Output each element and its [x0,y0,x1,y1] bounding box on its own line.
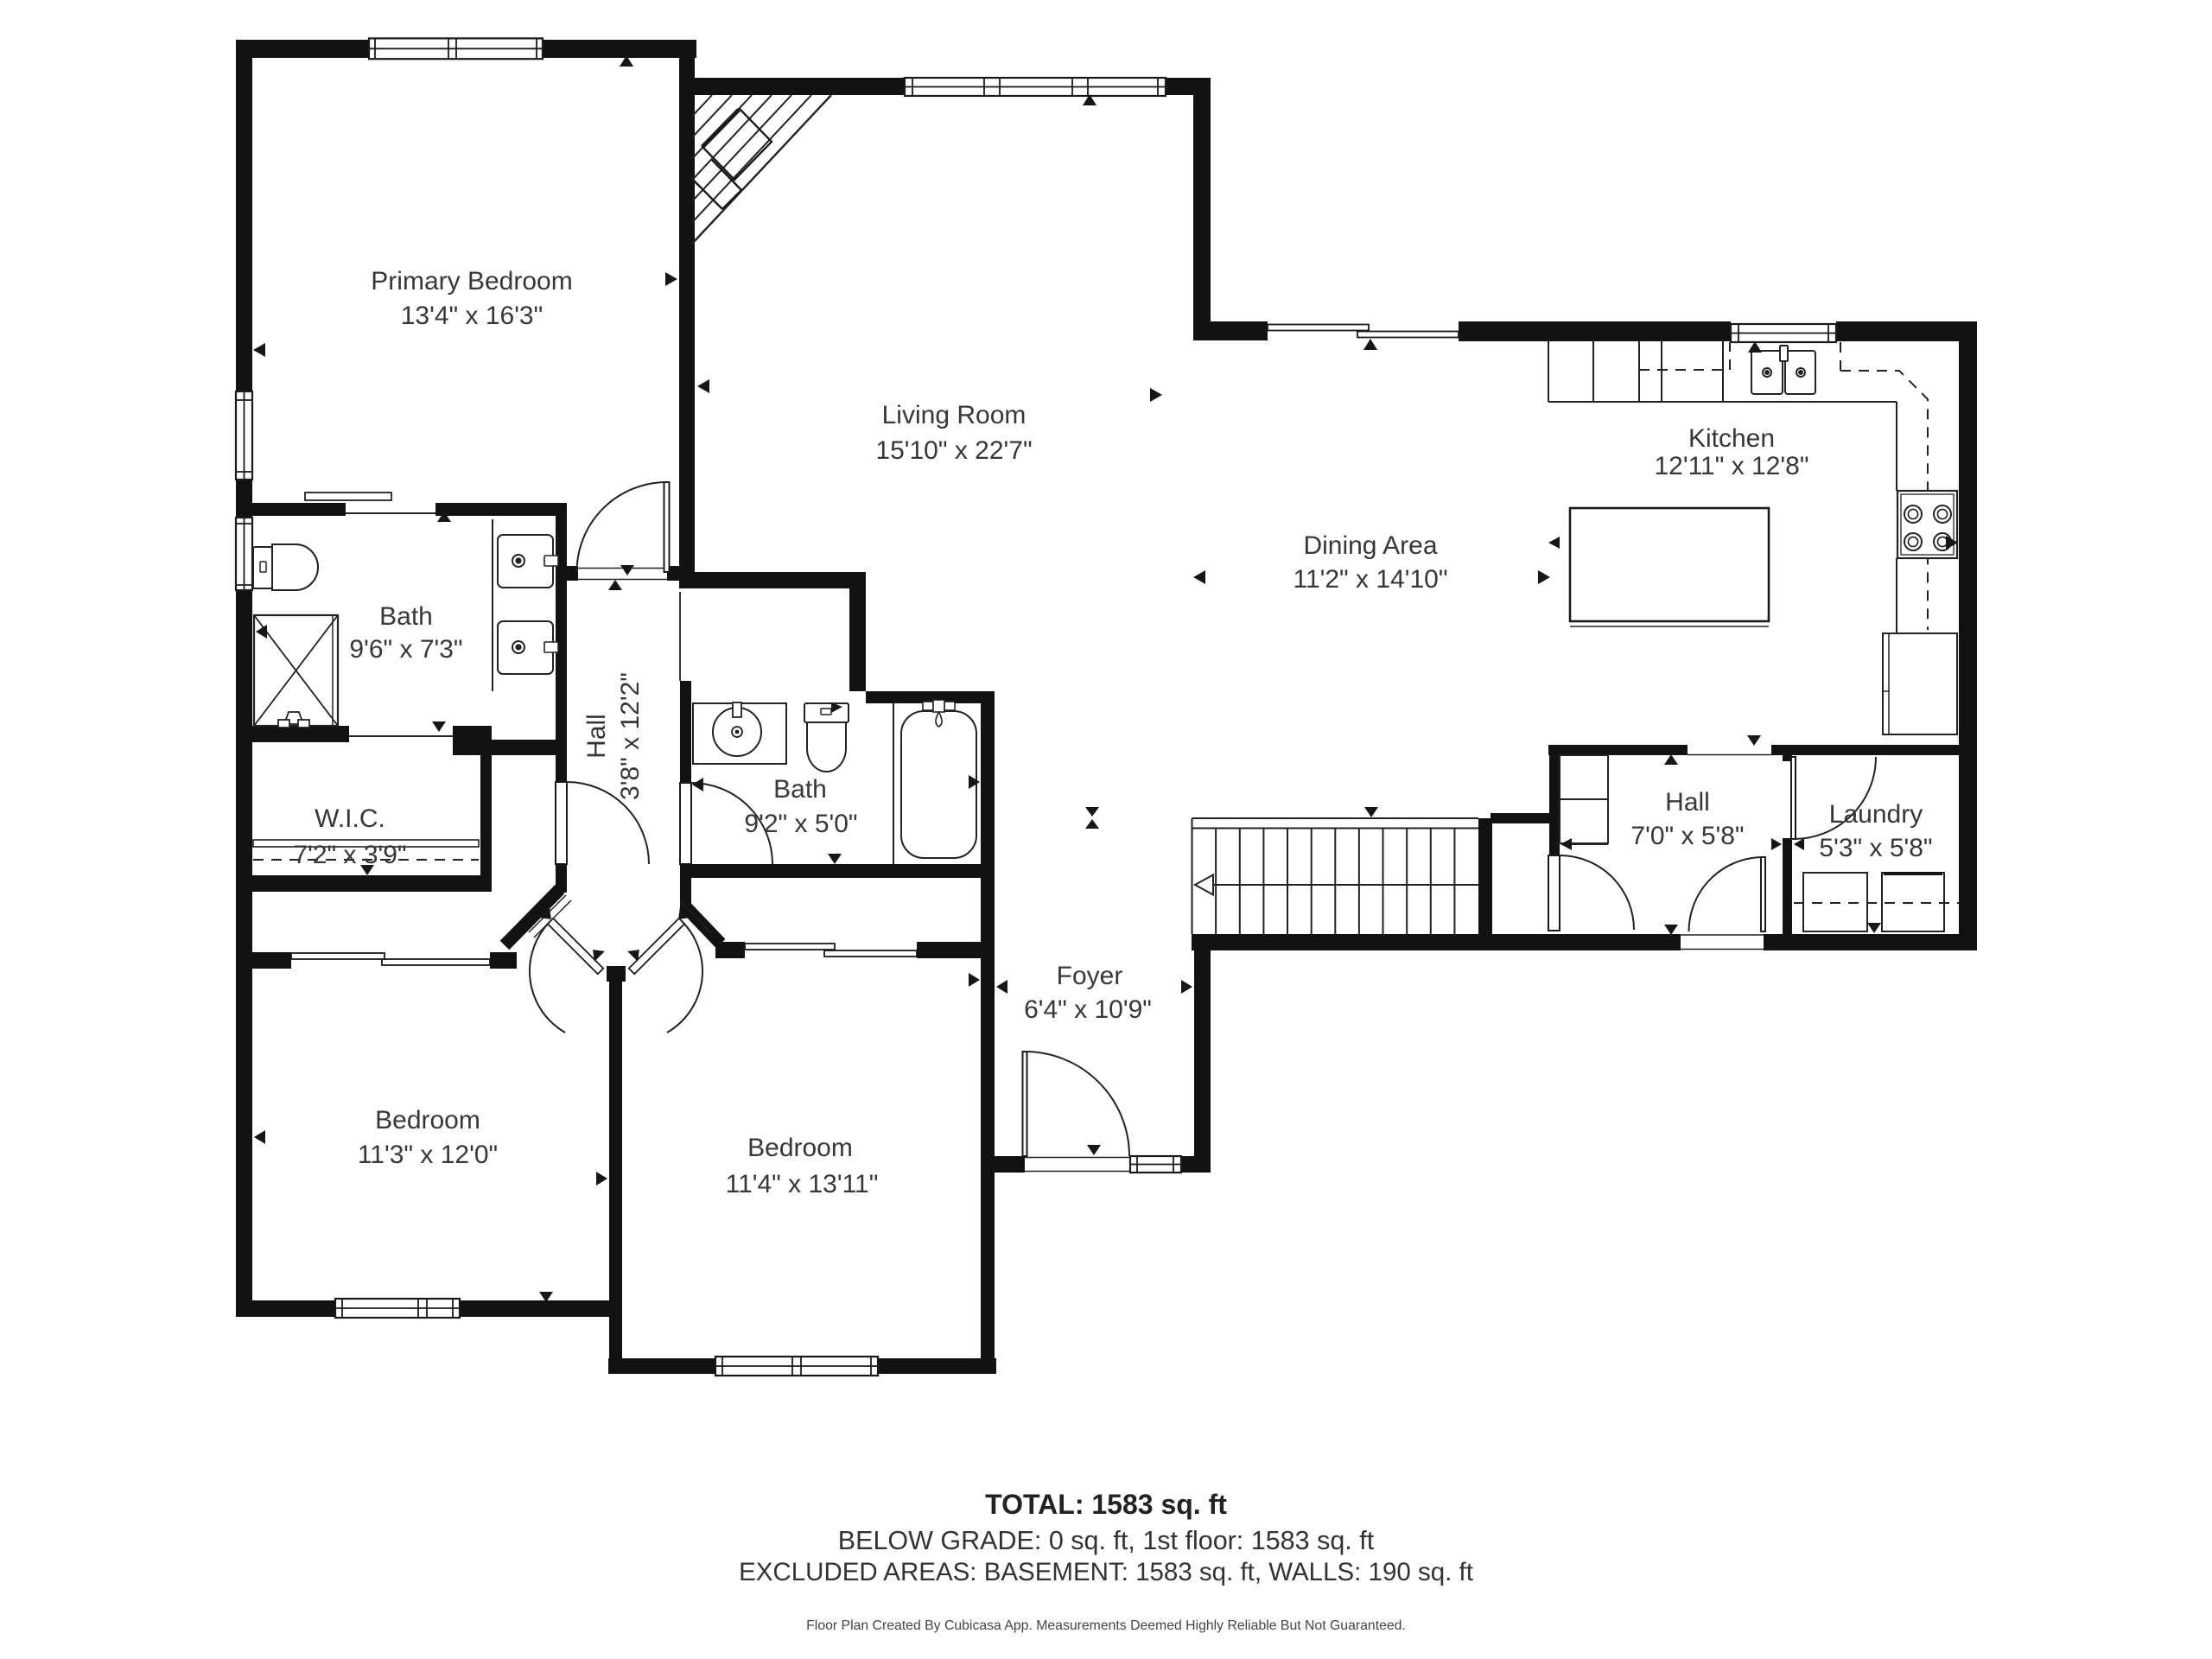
svg-text:Kitchen: Kitchen [1688,424,1775,453]
svg-text:Living Room: Living Room [882,401,1027,429]
svg-text:7'0" x 5'8": 7'0" x 5'8" [1630,822,1744,850]
svg-text:Primary Bedroom: Primary Bedroom [371,267,572,296]
svg-text:11'3" x 12'0": 11'3" x 12'0" [358,1141,498,1169]
svg-text:Bath: Bath [773,775,827,804]
svg-text:Floor Plan Created By Cubicasa: Floor Plan Created By Cubicasa App. Meas… [806,1618,1406,1633]
svg-text:EXCLUDED AREAS: BASEMENT: 1583: EXCLUDED AREAS: BASEMENT: 1583 sq. ft, W… [739,1558,1473,1586]
svg-text:BELOW GRADE: 0 sq. ft, 1st flo: BELOW GRADE: 0 sq. ft, 1st floor: 1583 s… [838,1526,1375,1555]
svg-text:15'10" x 22'7": 15'10" x 22'7" [875,436,1032,465]
svg-text:Bedroom: Bedroom [747,1134,853,1162]
svg-text:12'11" x 12'8": 12'11" x 12'8" [1655,452,1809,480]
svg-text:11'4" x 13'11": 11'4" x 13'11" [726,1170,879,1198]
svg-text:5'3" x 5'8": 5'3" x 5'8" [1819,834,1932,862]
svg-text:W.I.C.: W.I.C. [315,804,385,833]
svg-text:Laundry: Laundry [1829,800,1923,829]
svg-text:Bedroom: Bedroom [375,1106,480,1135]
svg-text:Hall: Hall [1665,788,1710,817]
svg-text:7'2" x 3'9": 7'2" x 3'9" [293,841,406,869]
svg-text:TOTAL: 1583 sq. ft: TOTAL: 1583 sq. ft [985,1489,1227,1520]
svg-text:6'4" x 10'9": 6'4" x 10'9" [1024,995,1152,1024]
svg-text:13'4" x 16'3": 13'4" x 16'3" [401,302,543,330]
svg-text:11'2" x 14'10": 11'2" x 14'10" [1294,565,1448,594]
svg-text:Foyer: Foyer [1057,962,1123,990]
svg-text:Hall: Hall [582,714,611,759]
svg-text:9'2" x 5'0": 9'2" x 5'0" [744,810,857,838]
svg-text:Dining Area: Dining Area [1303,531,1437,560]
svg-text:9'6" x 7'3": 9'6" x 7'3" [349,635,462,664]
svg-text:Bath: Bath [379,602,433,631]
svg-text:3'8" x 12'2": 3'8" x 12'2" [616,672,645,800]
